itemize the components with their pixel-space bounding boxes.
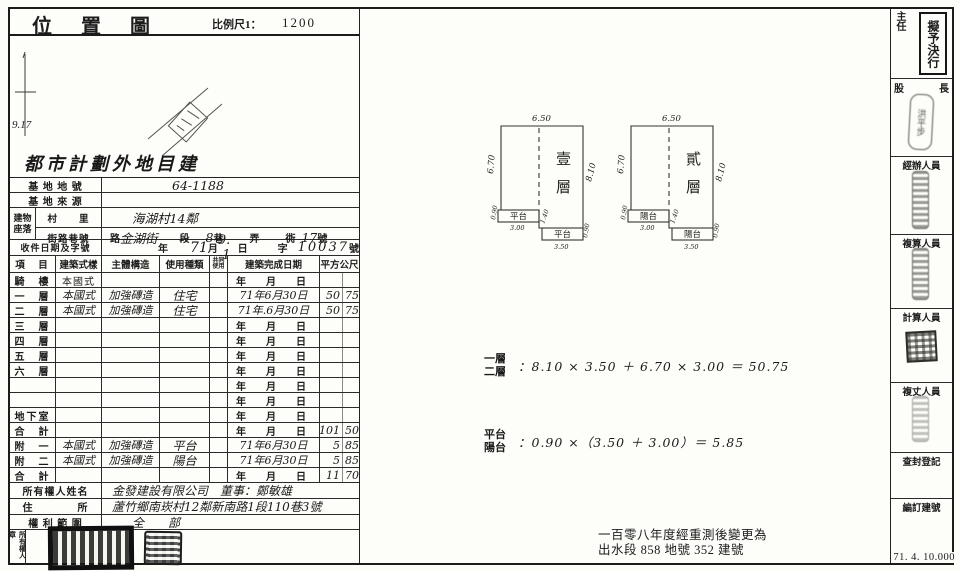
village-row: 村 里 海湖村14鄰 [36, 208, 359, 228]
floor-completion-date: 71年.6月30日 [228, 303, 320, 317]
floor-row: 二 層 本國式 加強磚造 住宅 71年.6月30日 50 75 [10, 303, 359, 318]
floor-structure [102, 318, 160, 332]
step-dim-2: 1.40 [668, 208, 680, 224]
calc-platforms-labels: 平台 陽台 [484, 428, 506, 454]
floor-area-dec [343, 318, 359, 332]
owner-name-row: 所有權人姓名 金發建設有限公司 董事：鄭敏雄 [10, 483, 359, 499]
owner-seal-area [26, 530, 359, 565]
section-chief-label-right: 長 [939, 80, 949, 95]
floor-area-int: 50 [320, 303, 343, 317]
floor-name: 附 一 [10, 438, 56, 452]
floor-structure [102, 393, 160, 407]
floor-common-use [210, 453, 228, 467]
floor-area-int: 50 [320, 288, 343, 302]
rear-platform-label: 平台 [510, 211, 527, 222]
hao-unit: 號 [349, 240, 359, 255]
floor-area-dec [343, 333, 359, 347]
calculator-label: 計算人員 [891, 309, 952, 324]
floor-area-dec [343, 363, 359, 377]
floor-structure [102, 408, 160, 422]
floor-common-use [210, 333, 228, 347]
form-sheet: 位 置 圖 比例尺1： 1200 [8, 7, 954, 565]
floor-name: 一 層 [10, 288, 56, 302]
dim-left: 6.70 [486, 154, 498, 174]
floor-completion-date: 71年6月30日 [228, 453, 320, 467]
floor-completion-date: 年 月 日 [228, 393, 320, 407]
receipt-row: 收件日期及字號 年 71 月 9. -1 日 字 10037 號 [10, 240, 359, 256]
owner-address-row: 住 所 蘆竹鄉南崁村12鄰新南路1段110巷3號 [10, 499, 359, 515]
rear-balcony-width: 3.00 [640, 224, 654, 232]
floor-area-dec: 85 [343, 438, 359, 452]
floor-completion-date: 71年6月30日 [228, 438, 320, 452]
floor-name: 附 二 [10, 453, 56, 467]
floor-common-use [210, 348, 228, 362]
floor-use: 陽台 [160, 453, 210, 467]
rechecker-seal [912, 248, 929, 300]
approval-cell-surveyor: 複丈人員 [891, 383, 952, 453]
floor-style: 本國式 [56, 303, 102, 317]
floor-use [160, 273, 210, 287]
step-dim: 1.40 [538, 208, 550, 224]
floor-row: 一 層 本國式 加強磚造 住宅 71年6月30日 50 75 [10, 288, 359, 303]
lot-source-label: 基 地 來 源 [10, 193, 102, 207]
floor-style: 本國式 [56, 288, 102, 302]
floor-area-int [320, 318, 343, 332]
floor-use [160, 378, 210, 392]
floor-common-use [210, 468, 228, 482]
floor-row: 五 層 年 月 日 [10, 348, 359, 363]
floor-common-use [210, 288, 228, 302]
building-location-label: 建物 座落 [10, 208, 36, 239]
representative-seal-stamp [144, 531, 183, 566]
floor-use [160, 363, 210, 377]
building-number-label: 編訂建號 [891, 499, 952, 514]
second-floor-title-2: 層 [686, 178, 701, 196]
front-platform-width: 3.50 [554, 243, 568, 251]
floor-use [160, 318, 210, 332]
floor-completion-date: 年 月 日 [228, 363, 320, 377]
front-platform-label: 平台 [554, 229, 571, 240]
month-unit: 月 [208, 240, 218, 255]
floor-style: 本國式 [56, 273, 102, 287]
receipt-label: 收件日期及字號 [10, 240, 102, 255]
floor-common-use [210, 318, 228, 332]
floor-completion-date: 年 月 日 [228, 423, 320, 437]
owner-name-label: 所有權人姓名 [10, 483, 102, 498]
floor-area-int: 101 [320, 423, 343, 437]
zoning-overlay-note: 都市計劃外地目建 [24, 150, 200, 176]
left-form-panel: 位 置 圖 比例尺1： 1200 [10, 9, 360, 563]
floor-area-int [320, 408, 343, 422]
rear-platform-width: 3.00 [510, 224, 524, 232]
floor-structure [102, 333, 160, 347]
dim-right-2: 8.10 [714, 161, 729, 182]
floor-area-dec: 70 [343, 468, 359, 482]
floor-structure [102, 423, 160, 437]
village-value: 海湖村14鄰 [132, 208, 198, 227]
floor-area-dec [343, 408, 359, 422]
floor-common-use [210, 423, 228, 437]
receipt-value: 年 71 月 9. -1 日 字 10037 號 [102, 240, 359, 255]
floor-structure [102, 378, 160, 392]
floor-area-int: 11 [320, 468, 343, 482]
floor-completion-date: 年 月 日 [228, 408, 320, 422]
floor-row: 六 層 年 月 日 [10, 363, 359, 378]
area-calculation-platforms: 平台 陽台 ：0.90 ×（3.50 ＋ 3.00）＝ 5.85 [484, 428, 744, 454]
section-chief-seal: 洪平步 [908, 93, 935, 150]
approval-cell-clerk: 經辦人員 [891, 157, 952, 235]
floor-style [56, 378, 102, 392]
floor-row: 騎 樓 本國式 年 月 日 [10, 273, 359, 288]
village-label: 村 里 [36, 208, 102, 227]
header-item: 項 目 [10, 256, 56, 272]
scanned-building-survey-form: 位 置 圖 比例尺1： 1200 [0, 0, 960, 571]
floor-structure: 加強磚造 [102, 303, 160, 317]
floor-completion-date: 年 月 日 [228, 273, 320, 287]
zi-unit: 字 [278, 240, 288, 255]
director-label: 主任 [893, 11, 905, 31]
floor-common-use [210, 393, 228, 407]
floor-area-dec [343, 393, 359, 407]
approval-cell-director: 主任 擬予決行 [891, 9, 952, 79]
second-floor-title-1: 貳 [686, 150, 701, 168]
company-seal-stamp [48, 526, 134, 571]
floor-row: 地下室 年 月 日 [10, 408, 359, 423]
rear-balcony-label: 陽台 [640, 211, 657, 222]
floor-use [160, 468, 210, 482]
floor-completion-date: 年 月 日 [228, 348, 320, 362]
dim-right: 8.10 [584, 161, 599, 182]
floor-area-int [320, 333, 343, 347]
floor-style [56, 468, 102, 482]
header-use: 使用種類 [160, 256, 210, 272]
floor-completion-date: 年 月 日 [228, 318, 320, 332]
floor-style [56, 423, 102, 437]
form-code: 71. 4. 10.000 [891, 552, 957, 563]
floor-common-use [210, 378, 228, 392]
front-balcony-label: 陽台 [684, 229, 701, 240]
floor-style: 本國式 [56, 453, 102, 467]
approval-cell-calculator: 計算人員 [891, 309, 952, 383]
floor-area-dec: 75 [343, 288, 359, 302]
floor-area-int [320, 378, 343, 392]
floor-area-int [320, 348, 343, 362]
calc-floors-expression: ：8.10 × 3.50 ＋ 6.70 × 3.00 ＝ 50.75 [518, 356, 789, 375]
location-map-section: 位 置 圖 比例尺1： 1200 [10, 9, 359, 178]
first-floor-title-2: 層 [556, 178, 571, 196]
header-structure: 主體構造 [102, 256, 160, 272]
floor-name: 四 層 [10, 333, 56, 347]
floor-structure [102, 363, 160, 377]
parcel-sketch [148, 88, 222, 156]
building-table: 項 目 建築式樣 主體構造 使用種類 共同 使用 建築完成日期 平方公尺 騎 樓… [10, 256, 359, 483]
floor-row: 年 月 日 [10, 393, 359, 408]
owner-address-value: 蘆竹鄉南崁村12鄰新南路1段110巷3號 [102, 498, 321, 515]
floor-completion-date: 年 月 日 [228, 378, 320, 392]
floor-common-use [210, 363, 228, 377]
calc-platforms-expression: ：0.90 ×（3.50 ＋ 3.00）＝ 5.85 [518, 432, 744, 451]
floor-area-dec: 85 [343, 453, 359, 467]
floor-common-use [210, 273, 228, 287]
floor-name: 三 層 [10, 318, 56, 332]
floor-common-use [210, 303, 228, 317]
lot-source-row: 基 地 來 源 [10, 193, 359, 208]
lot-number-value: 64-1188 [172, 178, 224, 193]
floor-style [56, 363, 102, 377]
area-calculation-floors: 一層 二層 ：8.10 × 3.50 ＋ 6.70 × 3.00 ＝ 50.75 [484, 352, 789, 378]
floor-style [56, 318, 102, 332]
floor-plan-first: 壹 層 6.50 6.70 8.10 平台 0.90 3.00 1.40 平台 … [486, 114, 599, 251]
floor-name [10, 393, 56, 407]
clerk-seal [912, 171, 929, 229]
location-map-title: 位 置 圖 [32, 10, 162, 39]
floor-name: 五 層 [10, 348, 56, 362]
floor-structure: 加強磚造 [102, 288, 160, 302]
header-completion-date: 建築完成日期 [228, 256, 320, 272]
floor-row: 三 層 年 月 日 [10, 318, 359, 333]
section-chief-label-left: 股 [894, 80, 904, 95]
floor-name: 騎 樓 [10, 273, 56, 287]
floor-area-int: 5 [320, 438, 343, 452]
floor-row: 附 一 本國式 加強磚造 平台 71年6月30日 5 85 [10, 438, 359, 453]
floor-style [56, 408, 102, 422]
floor-use [160, 408, 210, 422]
floor-name: 六 層 [10, 363, 56, 377]
dim-top-2: 6.50 [662, 114, 682, 124]
scale-label: 比例尺1： [212, 16, 262, 32]
floor-area-int: 5 [320, 453, 343, 467]
owner-seal-label: 所有權人章 [10, 530, 26, 565]
floor-use [160, 393, 210, 407]
location-map-area: 9.17 都市計劃外地目建 [10, 36, 359, 177]
floor-area-int [320, 273, 343, 287]
calc-floors-labels: 一層 二層 [484, 352, 506, 378]
owner-name-value: 金發建設有限公司 董事：鄭敏雄 [102, 482, 292, 499]
floor-use [160, 423, 210, 437]
owner-address-label: 住 所 [10, 499, 102, 514]
approval-cell-section-chief: 股 長 洪平步 [891, 79, 952, 157]
approval-strip: 主任 擬予決行 股 長 洪平步 經辦人員 複算人員 計算人員 [890, 9, 952, 563]
building-table-header: 項 目 建築式樣 主體構造 使用種類 共同 使用 建築完成日期 平方公尺 [10, 256, 359, 273]
calculator-seal [905, 330, 938, 363]
floor-name: 二 層 [10, 303, 56, 317]
seizure-label: 查封登記 [891, 453, 952, 468]
receipt-year-value: 71 [190, 240, 208, 256]
approval-cell-rechecker: 複算人員 [891, 235, 952, 309]
floor-plan-drawings: 壹 層 6.50 6.70 8.10 平台 0.90 3.00 1.40 平台 … [478, 110, 750, 262]
remeasurement-note-line2: 出水段 858 地號 352 建號 [598, 543, 767, 558]
floor-use: 住宅 [160, 288, 210, 302]
floor-use: 平台 [160, 438, 210, 452]
location-map-header: 位 置 圖 比例尺1： 1200 [10, 9, 359, 36]
approval-cell-seizure: 查封登記 [891, 453, 952, 499]
clerk-label: 經辦人員 [891, 157, 952, 172]
floor-area-dec: 75 [343, 303, 359, 317]
lot-number-label: 基 地 地 號 [10, 178, 102, 192]
floor-common-use [210, 438, 228, 452]
floor-name: 合 計 [10, 423, 56, 437]
floor-style [56, 348, 102, 362]
first-floor-title-1: 壹 [556, 150, 571, 168]
floor-style: 本國式 [56, 438, 102, 452]
floor-structure [102, 348, 160, 362]
floor-area-dec [343, 378, 359, 392]
surveyor-seal [912, 396, 929, 442]
receipt-number-value: 10037 [298, 240, 349, 255]
header-style: 建築式樣 [56, 256, 102, 272]
dim-top: 6.50 [532, 114, 552, 124]
floor-row: 合 計 年 月 日 101 50 [10, 423, 359, 438]
floor-structure: 加強磚造 [102, 453, 160, 467]
floor-area-int [320, 363, 343, 377]
floor-style [56, 393, 102, 407]
floor-completion-date: 年 月 日 [228, 333, 320, 347]
floor-structure [102, 273, 160, 287]
front-platform-depth: 0.90 [581, 223, 591, 239]
floor-row: 附 二 本國式 加強磚造 陽台 71年6月30日 5 85 [10, 453, 359, 468]
floor-structure [102, 468, 160, 482]
floor-style [56, 333, 102, 347]
owner-seal-row: 所有權人章 [10, 530, 359, 565]
building-location-rows: 建物 座落 村 里 海湖村14鄰 街路巷號 路 金湖街 段 8 [10, 208, 359, 240]
floor-completion-date: 71年6月30日 [228, 288, 320, 302]
remeasurement-note: 一百零八年度經重測後變更為 出水段 858 地號 352 建號 [598, 528, 767, 558]
floor-row: 年 月 日 [10, 378, 359, 393]
receipt-day-value: 9. -1 [218, 233, 238, 263]
dim-left-2: 6.70 [616, 154, 628, 174]
floor-name: 地下室 [10, 408, 56, 422]
floor-name [10, 378, 56, 392]
front-balcony-depth: 0.90 [711, 223, 721, 239]
floor-common-use [210, 408, 228, 422]
front-balcony-width: 3.50 [684, 243, 698, 251]
floor-area-dec: 50 [343, 423, 359, 437]
floor-name: 合 計 [10, 468, 56, 482]
floor-completion-date: 年 月 日 [228, 468, 320, 482]
floor-row: 四 層 年 月 日 [10, 333, 359, 348]
remeasurement-note-line1: 一百零八年度經重測後變更為 [598, 528, 767, 543]
floor-area-dec [343, 273, 359, 287]
lot-number-row: 基 地 地 號 64-1188 [10, 178, 359, 193]
header-area: 平方公尺 [320, 256, 359, 272]
floor-row: 合 計 年 月 日 11 70 [10, 468, 359, 483]
floor-use: 住宅 [160, 303, 210, 317]
floor-structure: 加強磚造 [102, 438, 160, 452]
floor-use [160, 348, 210, 362]
scale-value: 1200 [282, 15, 316, 31]
floor-area-dec [343, 348, 359, 362]
floor-area-int [320, 393, 343, 407]
road-elevation-label: 9.17 [12, 119, 32, 131]
floor-plan-second: 貳 層 6.50 6.70 8.10 陽台 0.90 3.00 1.40 陽台 … [616, 114, 729, 251]
approval-stamp: 擬予決行 [919, 12, 947, 75]
floor-use [160, 333, 210, 347]
day-unit: 日 [238, 240, 248, 255]
year-unit: 年 [158, 240, 168, 255]
